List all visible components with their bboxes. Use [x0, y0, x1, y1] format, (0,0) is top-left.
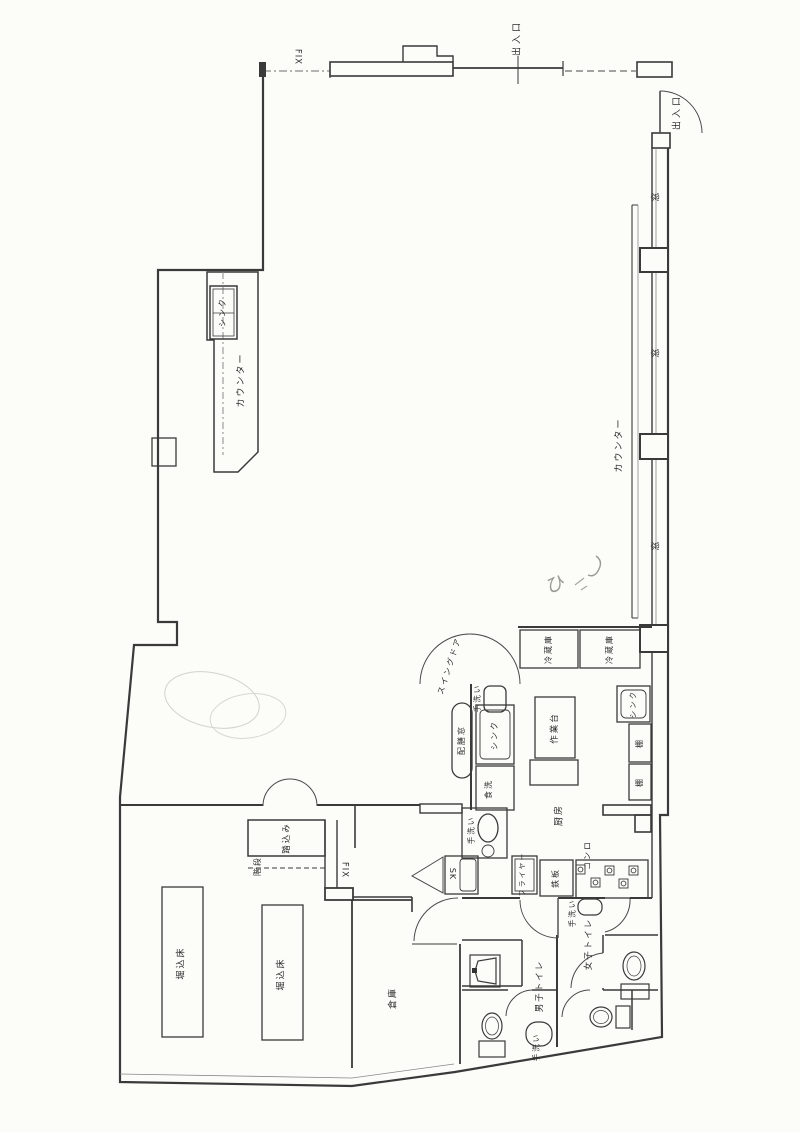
label-shelf-1: 棚	[636, 738, 644, 748]
label-handwash-mens: 手洗い	[532, 1033, 540, 1062]
sk-door-triangle	[412, 857, 443, 893]
label-counter-left: カウンター	[238, 352, 247, 407]
label-kitchen: 厨房	[556, 804, 565, 826]
left-counter-outline	[207, 272, 258, 472]
label-fridge-2: 冷蔵庫	[606, 634, 614, 664]
label-fix-top: FIX	[293, 49, 302, 65]
label-womens-toilet: 女子トイレ	[585, 918, 594, 971]
handwash-top-basin	[484, 686, 506, 712]
work-table-2	[530, 760, 578, 785]
label-handwash-west: 手洗い	[467, 816, 475, 845]
label-sunken-floor-2: 堀込床	[278, 957, 287, 990]
handwritten-scribble-2	[575, 578, 587, 590]
floor-plan-drawing	[0, 0, 800, 1132]
right-counter-outline	[632, 205, 638, 618]
handwritten-scribble-1	[588, 556, 600, 576]
label-counter-right: カウンター	[616, 417, 625, 472]
label-handwash-anteroom: 手洗い	[568, 899, 576, 928]
label-dishwasher: 食洗	[485, 779, 493, 799]
label-shelf-2: 棚	[636, 777, 644, 787]
label-exit-right: 出入口	[674, 94, 683, 130]
label-fridge-1: 冷蔵庫	[545, 634, 553, 664]
floor-plan-page: 出入口 FIX 出入口 窓 窓 窓 カウンター カウンター シンク 冷蔵庫 冷蔵…	[0, 0, 800, 1132]
anteroom-basin	[578, 899, 602, 915]
womens-entry-arc	[605, 898, 630, 932]
right-wall-windows	[640, 148, 668, 898]
label-griddle: 鉄板	[552, 868, 560, 888]
label-mens-toilet: 男子トイレ	[536, 960, 545, 1013]
storage-door-arc	[414, 898, 458, 941]
label-sink-counter: シンク	[219, 297, 227, 327]
label-stairs: 階段	[254, 856, 262, 876]
label-serving-window: 配膳窓	[458, 725, 466, 755]
mens-stall-door-arc	[506, 990, 532, 1016]
dishwasher	[476, 766, 514, 810]
label-window-1: 窓	[653, 190, 662, 201]
kitchen-fixtures	[445, 630, 651, 898]
label-handwash-top: 手洗い	[473, 684, 481, 713]
label-work-table: 作業台	[551, 712, 560, 744]
label-fryer: フライヤー	[520, 852, 527, 897]
label-fix-mid: FIX	[340, 862, 349, 878]
label-window-2: 窓	[653, 346, 662, 357]
pencil-annotations	[159, 556, 600, 743]
toilet-fixtures	[470, 899, 649, 1057]
label-sk: SK	[448, 868, 456, 880]
swing-door-arc	[420, 634, 520, 684]
counters	[207, 205, 638, 618]
mens-entry-arc	[520, 900, 558, 938]
label-sink-kitchen: シンク	[491, 720, 499, 750]
label-storage: 倉庫	[390, 987, 399, 1009]
label-window-3: 窓	[653, 539, 662, 550]
womens-stall2-door-arc	[562, 990, 590, 1017]
urinal-icon	[475, 958, 496, 984]
label-exit-top: 出入口	[514, 20, 523, 56]
label-sink-wall: シンク	[629, 690, 637, 719]
tatami-door-arc	[263, 779, 317, 806]
doors	[263, 91, 702, 1017]
label-entry-step: 踏込み	[283, 822, 292, 854]
label-stove: コンロ	[584, 840, 592, 870]
label-sunken-floor-1: 堀込床	[178, 946, 187, 979]
